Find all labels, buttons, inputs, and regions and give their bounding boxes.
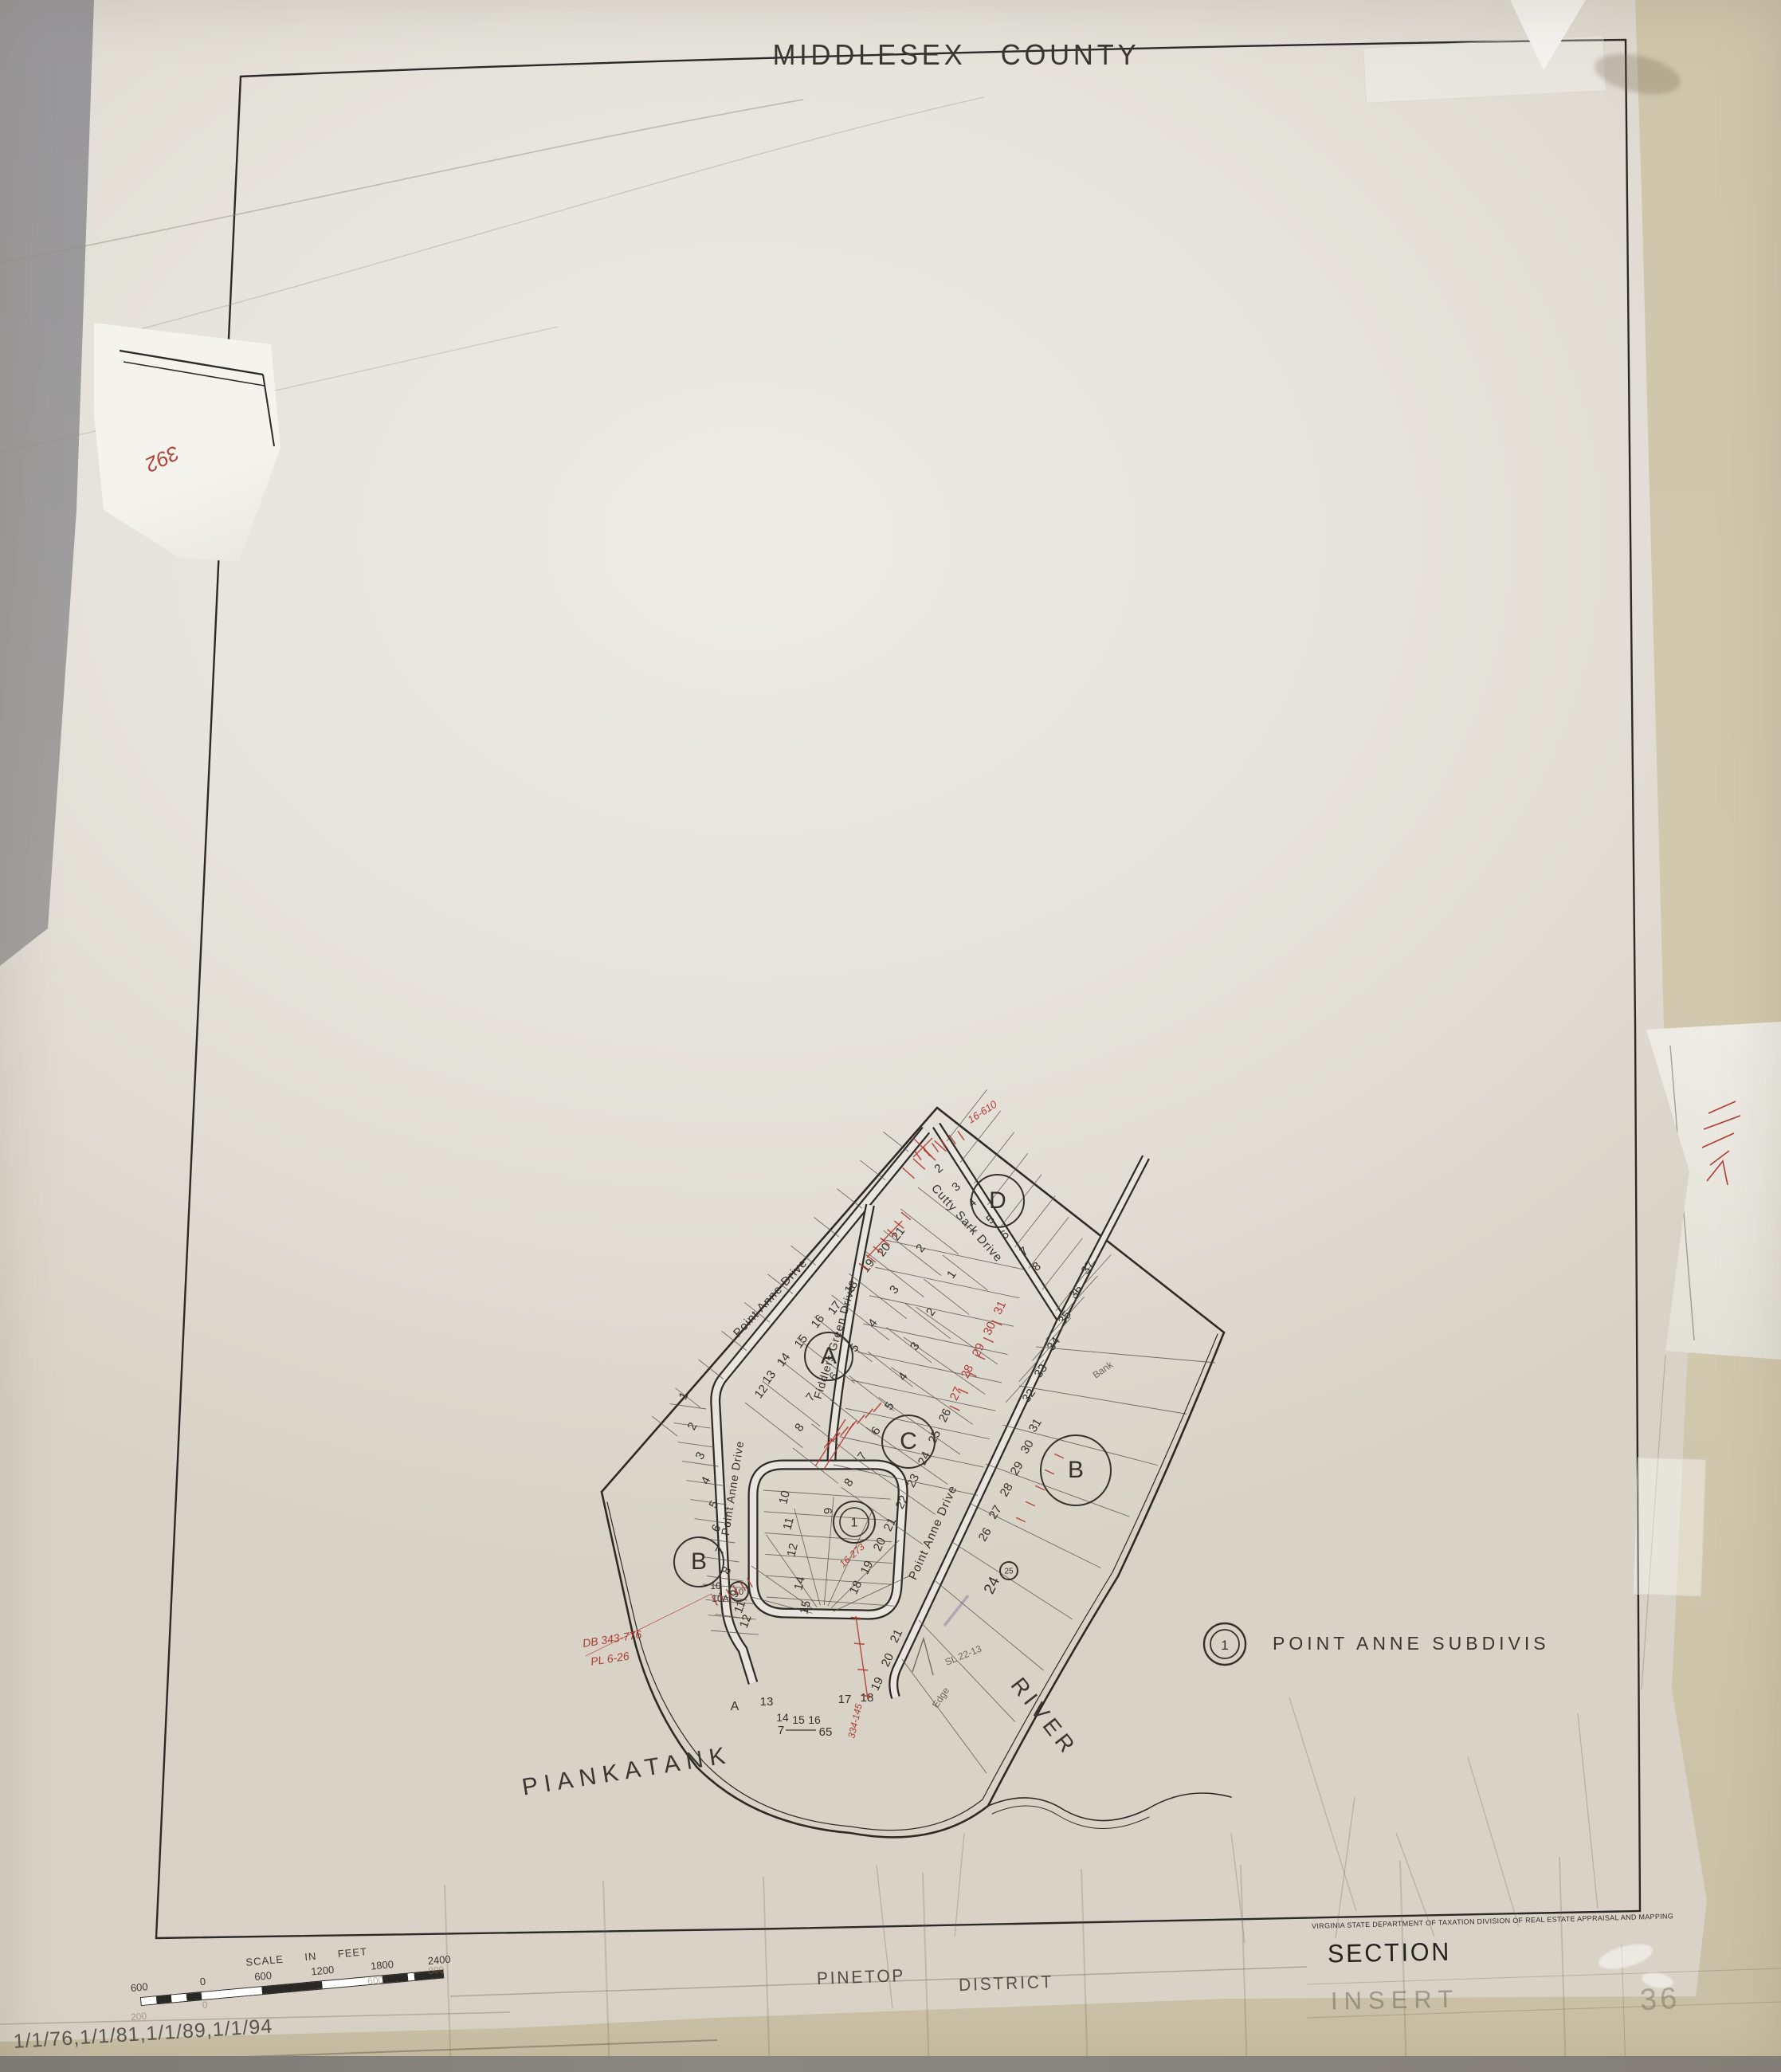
lot-number: 15 — [792, 1332, 811, 1352]
red-annotation: DB 343-776 — [582, 1627, 643, 1650]
scale-label: 1200 — [311, 1964, 335, 1978]
lot-line — [950, 1406, 960, 1411]
lot-line — [1035, 1485, 1045, 1489]
lot-line — [983, 1337, 994, 1342]
lot-number: 24 — [981, 1574, 1003, 1597]
lot-line — [841, 1426, 849, 1435]
lot-line — [1036, 1347, 1215, 1363]
lot-line — [1045, 1470, 1054, 1474]
lot-line — [883, 1132, 908, 1152]
faint-underlying-scale-label: 800 — [428, 1964, 445, 1976]
lot-number: 16 — [808, 1713, 821, 1726]
district-word: DISTRICT — [959, 1972, 1054, 1995]
red-annotation: 16-610 — [965, 1097, 999, 1125]
lot-number: 8 — [841, 1476, 857, 1489]
lot-number: 30 — [1018, 1438, 1037, 1456]
lot-line — [902, 1659, 987, 1773]
lot-number: 14 — [776, 1711, 789, 1724]
lot-number: 27 — [987, 1503, 1005, 1521]
pencil-annotation: Bank — [1091, 1359, 1116, 1381]
lot-number: 14 — [791, 1576, 808, 1591]
scale-segment — [202, 1987, 263, 1999]
red-annotation: PL 6-26 — [590, 1649, 630, 1667]
block-letter: C — [900, 1428, 917, 1454]
scale-segment — [382, 1974, 409, 1984]
lot-number: 16 — [809, 1313, 828, 1332]
lot-number: 20 — [871, 1536, 889, 1553]
map-title: MIDDLESEX COUNTY — [757, 38, 1155, 72]
scale-segment — [186, 1992, 202, 2001]
lot-line — [1016, 1517, 1026, 1521]
road-surface — [936, 1125, 1061, 1320]
lot-number: 13 — [760, 1695, 774, 1709]
lot-line — [852, 1380, 996, 1411]
lot-line — [932, 1143, 939, 1152]
lot-line — [1054, 1454, 1064, 1458]
block-letter: B — [1068, 1457, 1084, 1483]
lot-number: 1 — [944, 1268, 959, 1281]
scale-segment — [261, 1981, 323, 1994]
scale-label: 600 — [254, 1969, 273, 1983]
scale-label: 0 — [199, 1976, 206, 1988]
lot-number: 15 — [792, 1713, 805, 1726]
lot-number: 5 — [882, 1399, 897, 1413]
lot-number: 11 — [781, 1516, 797, 1531]
lot-number: 12 — [737, 1613, 755, 1630]
lot-line — [682, 1462, 719, 1466]
lot-line — [765, 1554, 892, 1563]
lot-number: 26 — [976, 1525, 994, 1544]
lot-number: 2 — [924, 1305, 939, 1319]
map-marker-number: 25 — [1004, 1568, 1014, 1576]
lot-number: 3 — [693, 1450, 708, 1462]
scale-segment — [171, 1994, 187, 2003]
scale-segment — [156, 1995, 172, 2004]
lot-number: 65 — [819, 1725, 833, 1739]
insert-label: INSERT — [1331, 1985, 1460, 2016]
lot-number: 8 — [792, 1421, 807, 1434]
lot-line — [974, 1132, 1014, 1184]
scale-bar-segments — [140, 1969, 444, 2006]
water-name: RIVER — [1006, 1673, 1083, 1760]
district-name: PINETOP — [817, 1965, 906, 1989]
lot-line — [586, 1594, 712, 1656]
lot-number: 4 — [896, 1370, 911, 1383]
lot-number: 3 — [887, 1283, 902, 1297]
lot-number: 19 — [869, 1675, 887, 1693]
lot-line — [865, 1409, 873, 1418]
legend-symbol: 1 — [1221, 1638, 1228, 1653]
section-label: SECTION — [1328, 1937, 1452, 1969]
faint-underlying-scale-label: 200 — [130, 2010, 147, 2023]
lot-number: 4 — [865, 1317, 881, 1330]
lot-number: 17 — [838, 1693, 852, 1706]
subdivision-plat: Point Anne DrivePoint Anne DriveFiddlers… — [510, 1068, 1546, 1865]
block-letter: A — [821, 1343, 837, 1369]
lot-line — [766, 1576, 893, 1584]
lot-line — [958, 1131, 964, 1140]
pencil-annotation: SL 22-13 — [943, 1643, 983, 1668]
lot-number: 9 — [822, 1508, 835, 1514]
scale-segment — [141, 1996, 157, 2005]
tape-piece — [1633, 1458, 1706, 1597]
lot-number: 10 — [776, 1489, 793, 1505]
pencil-annotation: Edge — [930, 1685, 951, 1709]
block-letter: D — [989, 1187, 1006, 1214]
lot-line — [952, 1542, 1073, 1619]
lot-line — [765, 1533, 892, 1542]
lot-number: 3 — [949, 1179, 963, 1194]
lot-number: 14 — [775, 1351, 794, 1370]
lot-line — [845, 1408, 990, 1438]
lot-line — [678, 1442, 715, 1447]
map-marker-number: 1 — [851, 1517, 858, 1530]
lot-line — [857, 1415, 865, 1423]
lot-number: 27 — [947, 1385, 966, 1403]
lot-number: 3 — [908, 1340, 923, 1353]
lot-number: 21 — [888, 1627, 906, 1645]
lot-number: 12 — [784, 1542, 801, 1558]
lot-number: 28 — [998, 1481, 1016, 1499]
lot-number: 2 — [685, 1420, 700, 1432]
faint-underlying-scale-label: 600 — [367, 1974, 384, 1987]
lot-line — [857, 1670, 868, 1670]
legend: 1 POINT ANNE SUBDIVISION — [1204, 1623, 1546, 1665]
photo-bottom-edge — [0, 2056, 1781, 2072]
lot-number: 10 — [710, 1580, 721, 1591]
lot-line — [903, 1167, 915, 1178]
lot-line — [1019, 1386, 1187, 1414]
lot-number: 13 — [760, 1368, 779, 1387]
paper-crease — [0, 100, 803, 263]
water-name: PIANKATANK — [520, 1742, 734, 1801]
lot-line — [856, 1616, 868, 1699]
lot-number: 31 — [991, 1299, 1010, 1317]
lot-line — [763, 1381, 820, 1426]
lot-number: 29 — [1008, 1459, 1026, 1477]
lot-number: 7 — [778, 1724, 784, 1737]
lot-number: 4 — [699, 1474, 714, 1486]
lot-number: 24 — [916, 1450, 934, 1467]
river-line — [988, 1793, 1231, 1821]
legend-label: POINT ANNE SUBDIVISION — [1273, 1633, 1546, 1654]
lot-number: 2 — [932, 1161, 945, 1175]
lot-line — [1015, 1196, 1055, 1248]
lot-line — [916, 1307, 998, 1364]
lot-line — [900, 1209, 958, 1254]
paper-crease — [120, 97, 984, 335]
red-annotation: 334-145 — [845, 1702, 865, 1739]
scale-label: 1800 — [370, 1958, 394, 1972]
roads — [716, 1125, 1146, 1697]
scale-label: 600 — [130, 1980, 148, 1994]
lot-line — [873, 1403, 881, 1411]
faint-underlying-scale-label: 0 — [202, 1999, 208, 2011]
street-name: Point Anne Drive — [906, 1483, 959, 1582]
lot-line — [913, 1159, 925, 1169]
lot-number: A — [731, 1700, 739, 1713]
scanned-tax-map-photo: { "title": "MIDDLESEX COUNTY", "legend":… — [0, 0, 1781, 2072]
lot-number: 21 — [889, 1225, 908, 1244]
lot-line — [1026, 1501, 1035, 1505]
block-letter: B — [691, 1548, 707, 1575]
lot-line — [1002, 1175, 1042, 1226]
lot-number: 2 — [913, 1242, 928, 1255]
lot-number: 6 — [869, 1424, 884, 1438]
